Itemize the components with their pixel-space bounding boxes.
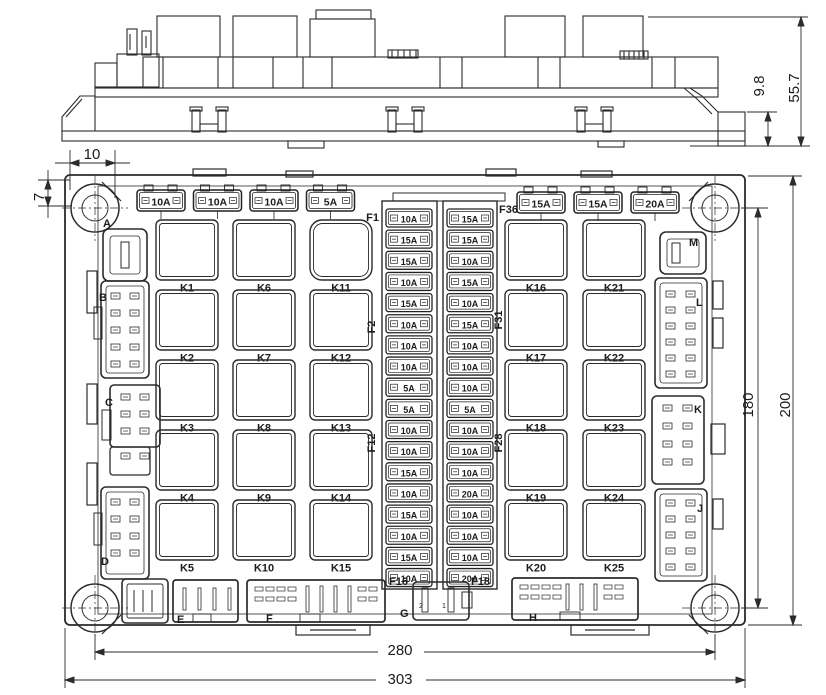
connector-label-g: G xyxy=(400,608,409,620)
fuse-amp-label: 10A xyxy=(208,197,228,209)
relay-label: K17 xyxy=(526,353,546,365)
connector-label-j: J xyxy=(697,503,703,515)
dim-step-height: 9.8 xyxy=(751,76,768,97)
relay-k7: K7 xyxy=(233,290,295,365)
fuse-amp-label: 10A xyxy=(401,341,418,351)
maxi-fuse-right-1: 15A xyxy=(517,187,565,213)
fuse-amp-label: 5A xyxy=(324,197,338,209)
mini-fuse-left-17: 15A xyxy=(386,547,432,565)
fuse-amp-label: 10A xyxy=(401,215,418,225)
fuse-group-label-f36: F36 xyxy=(499,204,518,216)
mini-fuse-right-7: 10A xyxy=(447,336,493,354)
relay-k14: K14 xyxy=(310,430,372,505)
relay-k23: K23 xyxy=(583,360,645,435)
dim-arrow xyxy=(70,160,79,166)
fuse-amp-label: 10A xyxy=(462,299,479,309)
connector-g-pin-2: 2 xyxy=(419,603,423,610)
side-profile-block xyxy=(117,54,159,87)
fuse-amp-label: 10A xyxy=(462,257,479,267)
fuse-group-label-f2: F2 xyxy=(366,321,378,334)
connector-a xyxy=(103,229,147,281)
relay-label: K7 xyxy=(257,353,271,365)
relay-label: K5 xyxy=(180,563,194,575)
fuse-amp-label: 20A xyxy=(462,489,479,499)
maxi-fuse-right-2: 15A xyxy=(574,187,622,213)
dim-arrow xyxy=(736,677,745,683)
relay-k10: K10 xyxy=(233,500,295,575)
dim-arrow xyxy=(798,137,804,146)
fuse-amp-label: 20A xyxy=(645,199,665,211)
dim-hole-offset-top: 10 xyxy=(84,146,101,163)
connector-m xyxy=(660,232,706,274)
relay-label: K3 xyxy=(180,423,194,435)
mini-fuse-right-11: 10A xyxy=(447,421,493,439)
relay-k5: K5 xyxy=(156,500,218,575)
fuse-amp-label: 15A xyxy=(588,199,608,211)
fuse-group-label-f28: F28 xyxy=(493,434,505,453)
relay-label: K10 xyxy=(254,563,274,575)
side-profile-block xyxy=(62,131,745,141)
top-edge-tab xyxy=(581,171,612,177)
relay-k9: K9 xyxy=(233,430,295,505)
relay-label: K14 xyxy=(331,493,352,505)
relay-k8: K8 xyxy=(233,360,295,435)
fuse-group-label-f1: F1 xyxy=(366,212,379,224)
mini-fuse-left-7: 10A xyxy=(386,336,432,354)
fuse-group-label-f12: F12 xyxy=(366,434,378,453)
relay-label: K25 xyxy=(604,563,624,575)
mounting-ear-4 xyxy=(682,575,748,641)
top-edge-tab xyxy=(286,171,313,177)
mounting-ear-2 xyxy=(682,175,748,241)
side-profile-block xyxy=(310,19,375,57)
mini-fuse-left-10: 5A xyxy=(386,399,432,417)
connector-label-f: F xyxy=(266,613,273,625)
dim-arrow xyxy=(65,677,74,683)
relay-label: K20 xyxy=(526,563,546,575)
fuse-amp-label: 10A xyxy=(401,278,418,288)
mini-fuse-right-15: 10A xyxy=(447,505,493,523)
side-right-slope xyxy=(690,88,718,112)
relay-label: K8 xyxy=(257,423,271,435)
mini-fuse-left-11: 10A xyxy=(386,421,432,439)
fuse-box-drawing: K1K2K3K4K5K6K7K8K9K10K11K12K13K14K15K16K… xyxy=(0,0,826,695)
relay-k12: K12 xyxy=(310,290,372,365)
relay-label: K22 xyxy=(604,353,624,365)
mini-fuse-right-1: 15A xyxy=(447,209,493,227)
fuse-amp-label: 15A xyxy=(462,215,479,225)
dim-hole-pitch-vertical: 180 xyxy=(740,392,757,417)
fuse-amp-label: 10A xyxy=(401,447,418,457)
relay-label: K12 xyxy=(331,353,351,365)
relay-k15: K15 xyxy=(310,500,372,575)
relay-k3: K3 xyxy=(156,360,218,435)
mini-fuse-left-16: 10A xyxy=(386,526,432,544)
fuse-amp-label: 10A xyxy=(264,197,284,209)
mini-fuse-right-16: 10A xyxy=(447,526,493,544)
connector-g-pin-1: 1 xyxy=(442,603,446,610)
side-profile-block xyxy=(316,10,371,19)
side-left-flange xyxy=(62,96,95,131)
mini-fuse-left-8: 10A xyxy=(386,357,432,375)
fuse-amp-label: 10A xyxy=(462,341,479,351)
side-wall-tab xyxy=(713,281,723,309)
fuse-amp-label: 10A xyxy=(462,532,479,542)
fuse-amp-label: 10A xyxy=(462,426,479,436)
relay-label: K23 xyxy=(604,423,624,435)
fuse-amp-label: 10A xyxy=(462,468,479,478)
mounting-ear-1 xyxy=(62,175,128,241)
fuse-amp-label: 10A xyxy=(462,384,479,394)
side-profile-block xyxy=(598,141,624,147)
fuse-amp-label: 5A xyxy=(403,384,415,394)
fuse-amp-label: 15A xyxy=(531,199,551,211)
fuse-amp-label: 10A xyxy=(462,511,479,521)
relay-label: K1 xyxy=(180,283,194,295)
mini-fuse-left-6: 10A xyxy=(386,315,432,333)
fuse-group-label-f31: F31 xyxy=(493,311,505,330)
relay-k24: K24 xyxy=(583,430,645,505)
mini-fuse-left-13: 15A xyxy=(386,463,432,481)
side-profile-block xyxy=(157,16,220,57)
dim-arrow xyxy=(765,112,771,121)
relay-label: K15 xyxy=(331,563,351,575)
connector-label-k: K xyxy=(694,404,702,416)
relay-label: K19 xyxy=(526,493,546,505)
mini-fuse-right-9: 10A xyxy=(447,378,493,396)
relay-k25: K25 xyxy=(583,500,645,575)
side-wall-tab xyxy=(713,318,723,348)
dim-hole-offset-side: 7 xyxy=(31,193,48,201)
fuse-amp-label: 5A xyxy=(403,405,415,415)
relay-k21: K21 xyxy=(583,220,645,295)
fuse-amp-label: 15A xyxy=(462,320,479,330)
mini-fuse-left-15: 15A xyxy=(386,505,432,523)
mini-fuse-right-17: 10A xyxy=(447,547,493,565)
dim-arrow xyxy=(798,17,804,26)
dim-arrow xyxy=(790,176,796,185)
relay-label: K18 xyxy=(526,423,546,435)
side-profile-block xyxy=(505,16,565,57)
dim-arrow xyxy=(45,180,51,189)
side-profile-block xyxy=(143,57,718,88)
mini-fuse-left-1: 10A xyxy=(386,209,432,227)
relay-k16: K16 xyxy=(505,220,567,295)
relay-k1: K1 xyxy=(156,220,218,295)
fuse-amp-label: 15A xyxy=(462,236,479,246)
side-wall-tab xyxy=(713,499,723,529)
fuse-amp-label: 15A xyxy=(401,236,418,246)
side-profile-block xyxy=(288,141,324,148)
fuse-amp-label: 10A xyxy=(462,363,479,373)
maxi-fuse-left-4: 5A xyxy=(307,185,355,211)
relay-label: K9 xyxy=(257,493,271,505)
connector-label-a: A xyxy=(103,218,111,230)
dim-arrow xyxy=(755,599,761,608)
dim-total-height: 55.7 xyxy=(786,73,803,102)
side-profile-block xyxy=(95,63,117,87)
fuse-group-label-f18: F18 xyxy=(471,576,490,588)
dim-arrow xyxy=(706,649,715,655)
connector-label-e: E xyxy=(177,614,184,626)
connector-small-square xyxy=(122,579,168,623)
fuse-amp-label: 10A xyxy=(401,320,418,330)
mini-fuse-right-5: 10A xyxy=(447,294,493,312)
mini-fuse-right-13: 10A xyxy=(447,463,493,481)
relay-k11: K11 xyxy=(310,220,372,295)
drawing-svg: K1K2K3K4K5K6K7K8K9K10K11K12K13K14K15K16K… xyxy=(0,0,826,695)
relay-k13: K13 xyxy=(310,360,372,435)
center-fuse-frames xyxy=(382,193,505,589)
mini-fuse-right-14: 20A xyxy=(447,484,493,502)
fuse-amp-label: 15A xyxy=(401,257,418,267)
mini-fuse-left-3: 15A xyxy=(386,251,432,269)
fuse-amp-label: 10A xyxy=(151,197,171,209)
fuse-amp-label: 15A xyxy=(401,468,418,478)
side-profile-block xyxy=(127,29,137,55)
fuse-amp-label: 5A xyxy=(464,405,476,415)
dim-body-width: 303 xyxy=(387,671,412,688)
connector-l xyxy=(655,278,707,388)
ear-gusset xyxy=(689,182,708,201)
fuse-amp-label: 10A xyxy=(462,447,479,457)
dimension-lines xyxy=(38,17,810,688)
mini-fuse-left-14: 10A xyxy=(386,484,432,502)
fuse-column-bridge xyxy=(393,193,505,201)
relay-k18: K18 xyxy=(505,360,567,435)
relay-k4: K4 xyxy=(156,430,218,505)
mini-fuse-left-5: 15A xyxy=(386,294,432,312)
mini-fuse-left-12: 10A xyxy=(386,442,432,460)
side-profile-block xyxy=(233,16,297,57)
fuse-group-label-f16: F16 xyxy=(389,576,408,588)
relay-k2: K2 xyxy=(156,290,218,365)
mini-fuse-right-2: 15A xyxy=(447,230,493,248)
side-elevation-view xyxy=(62,10,745,148)
mounting-ear-3 xyxy=(62,575,128,641)
relay-k17: K17 xyxy=(505,290,567,365)
connector-label-d: D xyxy=(101,556,109,568)
dim-arrow xyxy=(765,137,771,146)
relay-label: K6 xyxy=(257,283,271,295)
dim-arrow xyxy=(755,208,761,217)
ear-gusset xyxy=(102,182,121,201)
connector-label-c: C xyxy=(105,397,113,409)
mini-fuse-left-9: 5A xyxy=(386,378,432,396)
mini-fuse-right-6: 15A xyxy=(447,315,493,333)
fuse-amp-label: 10A xyxy=(401,363,418,373)
mini-fuse-right-8: 10A xyxy=(447,357,493,375)
fuse-amp-label: 15A xyxy=(462,278,479,288)
connector-label-l: L xyxy=(696,297,703,309)
fuse-amp-label: 15A xyxy=(401,511,418,521)
relay-label: K4 xyxy=(180,493,195,505)
fuse-amp-label: 15A xyxy=(401,553,418,563)
dim-arrow xyxy=(790,616,796,625)
mini-fuse-left-4: 10A xyxy=(386,272,432,290)
fuse-amp-label: 10A xyxy=(462,553,479,563)
fuse-amp-label: 10A xyxy=(401,532,418,542)
dim-hole-pitch-horizontal: 280 xyxy=(387,642,412,659)
relay-label: K13 xyxy=(331,423,351,435)
relay-k6: K6 xyxy=(233,220,295,295)
maxi-fuse-right-3: 20A xyxy=(631,187,679,213)
mini-fuse-right-4: 15A xyxy=(447,272,493,290)
connector-label-m: M xyxy=(689,237,698,249)
dim-arrow xyxy=(106,160,115,166)
connector-label-b: B xyxy=(99,292,107,304)
relay-grid: K1K2K3K4K5K6K7K8K9K10K11K12K13K14K15K16K… xyxy=(156,220,645,575)
relay-label: K16 xyxy=(526,283,546,295)
maxi-fuse-left-2: 10A xyxy=(194,185,242,211)
fuse-amp-label: 15A xyxy=(401,299,418,309)
relay-k20: K20 xyxy=(505,500,567,575)
mini-fuse-right-3: 10A xyxy=(447,251,493,269)
mini-fuse-right-12: 10A xyxy=(447,442,493,460)
relay-k22: K22 xyxy=(583,290,645,365)
maxi-fuse-left-1: 10A xyxy=(137,185,185,211)
side-profile-block xyxy=(95,88,718,97)
dim-arrow xyxy=(95,649,104,655)
relay-k19: K19 xyxy=(505,430,567,505)
side-wall-tab xyxy=(711,424,725,454)
mini-fuse-left-2: 15A xyxy=(386,230,432,248)
dim-body-height: 200 xyxy=(777,392,794,417)
fuse-amp-label: 10A xyxy=(401,426,418,436)
fuse-amp-label: 10A xyxy=(401,489,418,499)
relay-label: K21 xyxy=(604,283,624,295)
maxi-fuse-left-3: 10A xyxy=(250,185,298,211)
side-wall-tab xyxy=(87,463,97,505)
side-wall-tab xyxy=(87,384,97,424)
relay-label: K2 xyxy=(180,353,194,365)
connector-label-h: H xyxy=(529,612,537,624)
mini-fuse-right-10: 5A xyxy=(447,399,493,417)
relay-label: K24 xyxy=(604,493,625,505)
relay-label: K11 xyxy=(331,283,351,295)
